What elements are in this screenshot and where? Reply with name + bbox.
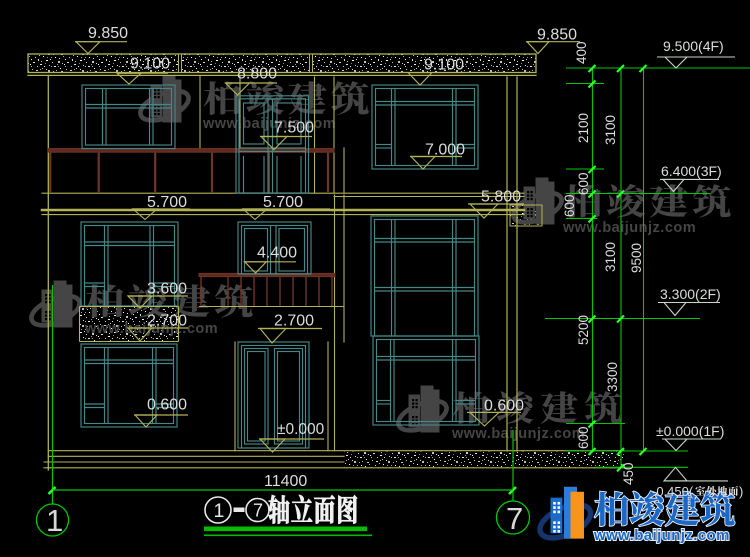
svg-text:9.100: 9.100 [130, 56, 170, 73]
svg-text:0.600: 0.600 [484, 398, 524, 415]
svg-text:7.000: 7.000 [425, 142, 465, 159]
svg-text:600: 600 [576, 172, 591, 195]
svg-text:0.600: 0.600 [147, 397, 187, 414]
svg-text:400: 400 [574, 41, 589, 64]
svg-text:8.800: 8.800 [237, 66, 277, 83]
svg-text:5.700: 5.700 [263, 194, 303, 211]
svg-text:600: 600 [562, 194, 577, 217]
svg-text:www.baijunjz.com: www.baijunjz.com [451, 426, 585, 442]
svg-text:±0.000(1F): ±0.000(1F) [656, 423, 724, 439]
svg-text:600: 600 [576, 426, 591, 449]
svg-text:9.100: 9.100 [424, 57, 464, 74]
svg-text:2100: 2100 [576, 113, 591, 143]
svg-text:1: 1 [214, 500, 225, 522]
svg-text:7.500: 7.500 [274, 120, 314, 137]
svg-text:2.700: 2.700 [147, 313, 187, 330]
svg-text:www.baijunjz.com: www.baijunjz.com [202, 116, 336, 132]
svg-text:7: 7 [506, 501, 523, 536]
svg-text:3100: 3100 [603, 242, 618, 272]
svg-text:9.850: 9.850 [88, 25, 128, 42]
svg-text:-0.450(: -0.450( [652, 484, 694, 499]
svg-text:1: 1 [46, 503, 63, 538]
svg-text:3.300(2F): 3.300(2F) [660, 286, 721, 302]
svg-text:3100: 3100 [603, 115, 618, 145]
svg-text:4.400: 4.400 [257, 245, 297, 262]
svg-text:5.800: 5.800 [481, 189, 521, 206]
svg-text:11400: 11400 [264, 473, 307, 490]
svg-text:): ) [739, 484, 743, 499]
svg-text:9500: 9500 [629, 243, 644, 273]
svg-text:±0.000: ±0.000 [277, 421, 325, 438]
svg-text:3.600: 3.600 [147, 281, 187, 298]
svg-text:6.400(3F): 6.400(3F) [661, 163, 722, 179]
svg-text:2.700: 2.700 [274, 313, 314, 330]
svg-text:5.700: 5.700 [147, 194, 187, 211]
svg-text:5200: 5200 [576, 315, 591, 345]
svg-text:9.500(4F): 9.500(4F) [663, 38, 724, 54]
svg-text:9.850: 9.850 [537, 27, 577, 44]
svg-text:7: 7 [253, 501, 263, 521]
svg-text:450: 450 [621, 462, 636, 485]
svg-text:3300: 3300 [605, 362, 620, 392]
svg-text:www.baijunjz.com: www.baijunjz.com [562, 220, 696, 236]
svg-text:www.baijunjz.com: www.baijunjz.com [593, 527, 730, 544]
